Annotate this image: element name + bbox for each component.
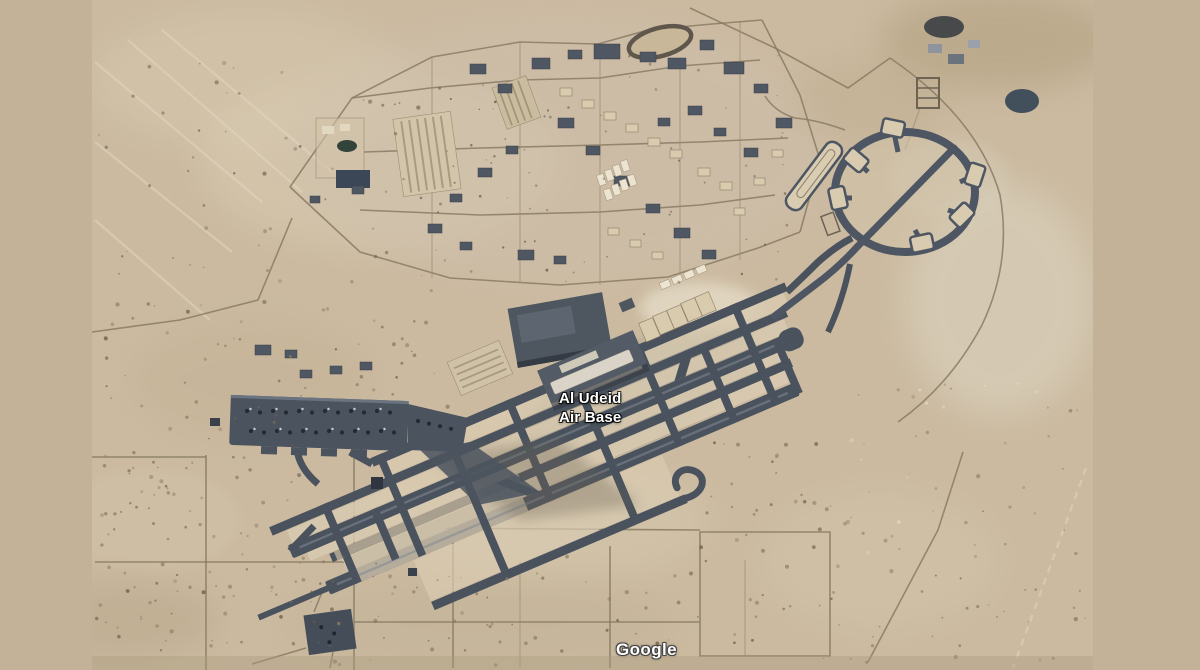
- letterbox-right: [1093, 0, 1200, 670]
- letterbox-left: [0, 0, 92, 670]
- place-label-al-udeid-air-base: Al Udeid Air Base: [559, 389, 621, 427]
- place-label-line2: Air Base: [559, 408, 621, 427]
- bottom-shade: [92, 656, 1093, 670]
- screenshot-root: Al Udeid Air Base Google: [0, 0, 1200, 670]
- google-logo-watermark: Google: [616, 640, 677, 660]
- place-label-line1: Al Udeid: [559, 389, 621, 408]
- satellite-imagery[interactable]: [0, 0, 1200, 670]
